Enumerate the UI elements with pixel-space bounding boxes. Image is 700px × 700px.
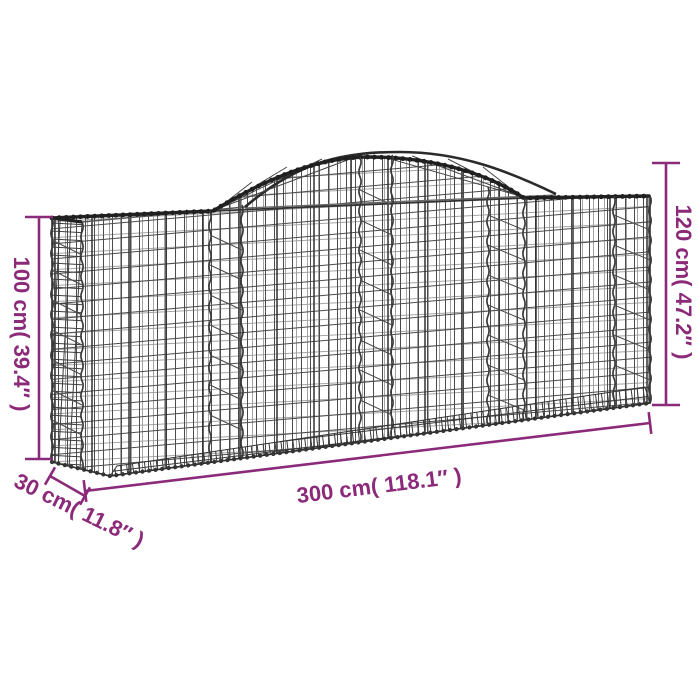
gabion-diagram-canvas: 100 cm( 39.4″ ) 120 cm( 47.2″ ) 300 cm( … [0,0,700,700]
product-dimension-diagram: 100 cm( 39.4″ ) 120 cm( 47.2″ ) 300 cm( … [0,0,700,700]
length-dimension-label: 300 cm( 118.1″ ) [295,463,463,508]
height-right-dimension-label: 120 cm( 47.2″ ) [671,205,696,360]
depth-dimension-label: 30 cm( 11.8″ ) [10,468,148,552]
gabion-basket-illustration [51,152,651,476]
height-left-dimension-label: 100 cm( 39.4″ ) [9,257,34,412]
